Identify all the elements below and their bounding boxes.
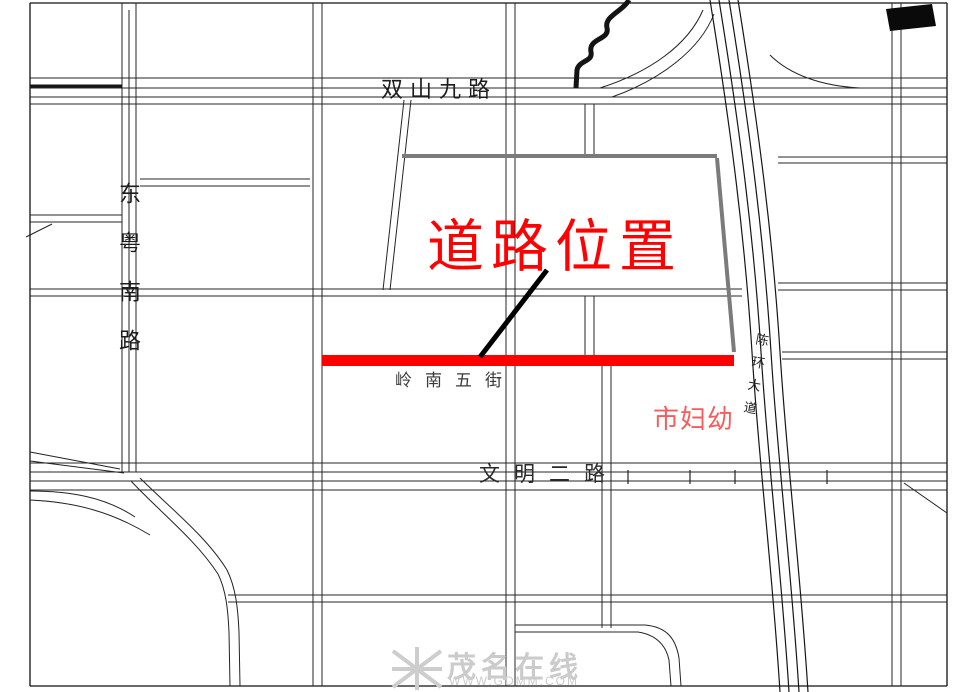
leader-line — [480, 270, 547, 357]
road-location-map: 双山九路 东粤南路 岭南五街 文明二路 陈环大道 道路位置 市妇幼 茂名在线 W… — [0, 0, 966, 692]
street-grid-vertical — [122, 3, 901, 686]
watermark-logo — [392, 647, 442, 690]
stream — [576, 0, 629, 88]
bottom-road-label: 文明二路 — [479, 458, 619, 488]
road-location-title: 道路位置 — [427, 201, 683, 283]
hospital-label: 市妇幼 — [653, 399, 734, 436]
left-road-label: 东粤南路 — [112, 182, 144, 378]
watermark-site-url: WWW.GDMM.COM — [449, 674, 579, 688]
highlight-bar — [322, 355, 734, 366]
black-marker — [886, 4, 936, 31]
top-road-label: 双山九路 — [381, 72, 497, 104]
middle-street-label: 岭南五街 — [395, 366, 515, 391]
